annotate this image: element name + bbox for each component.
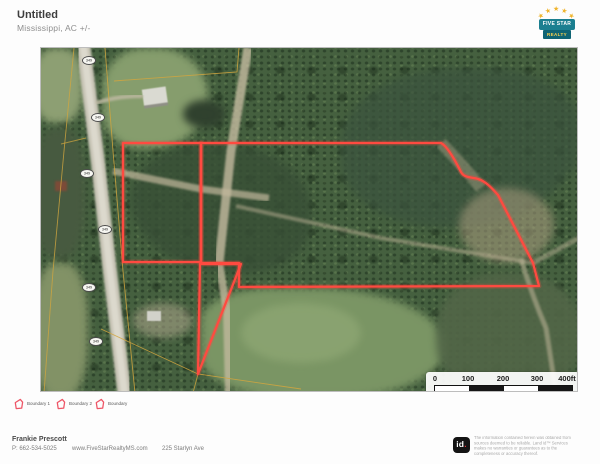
legend-item-boundary: Boundary [94,398,134,410]
logo-text-five-star: FIVE STAR [539,19,575,30]
legend-label: Boundary 2 [69,402,92,407]
road-badge-349: 349 [91,113,105,122]
star-icon: ★ [553,6,559,13]
map-report-page: Untitled Mississippi, AC +/- ★ ★ ★ ★ ★ F… [0,0,600,464]
boundary-polygon-icon [55,398,66,410]
legend-item-boundary-2: Boundary 2 [55,398,100,410]
road-badge-label: 349 [93,340,99,344]
dirt-path [533,238,578,263]
legend-item-boundary-1: Boundary 1 [13,398,58,410]
agent-phone: P: 662-534-5025 [12,446,57,452]
road-badge-349: 349 [82,283,96,292]
star-icon: ★ [544,7,552,15]
boundary-polygon-icon [13,398,24,410]
dirt-path [113,171,269,198]
road-badge-label: 349 [86,286,92,290]
driveway-path [96,96,143,103]
land-id-logo-text: id [456,439,464,449]
road-badge-label: 349 [86,59,92,63]
scale-label: 200 [497,374,510,383]
scale-label: 300 [531,374,544,383]
five-star-realty-logo: ★ ★ ★ ★ ★ FIVE STAR REALTY [536,5,578,44]
disclaimer: The information contained herein was obt… [474,436,574,458]
map-line-overlay [41,48,578,392]
boundary-2-glow [201,143,539,287]
scale-bar: 0 100 200 300 400ft [426,372,578,392]
scale-label: 400ft [558,374,576,383]
road-badge-349: 349 [80,169,94,178]
aerial-map: 349 349 349 349 349 349 0 100 200 300 40… [40,47,578,392]
scale-bar-segments [434,385,573,392]
road-badge-label: 349 [102,228,108,232]
page-title: Untitled [17,9,58,21]
dirt-path [236,206,533,263]
parcel-line [193,374,198,392]
dirt-path [219,263,229,392]
agent-name: Frankie Prescott [12,436,67,443]
parcel-line [114,48,239,81]
boundary-polygon-icon [94,398,105,410]
road-badge-349: 349 [82,56,96,65]
legend-label: Boundary 1 [27,402,50,407]
agency-website: www.FiveStarRealtyMS.com [72,446,148,452]
boundary-1-outline [123,143,201,262]
scale-label: 0 [433,374,437,383]
road-badge-349: 349 [98,225,112,234]
page-subtitle: Mississippi, AC +/- [17,23,90,33]
disclaimer-text: The information contained herein was obt… [474,436,574,457]
agency-address: 225 Starlyn Ave [162,446,204,452]
road-badge-349: 349 [89,337,103,346]
logo-text-realty: REALTY [543,30,571,39]
legend-label: Boundary [108,402,127,407]
boundary-2-outline [201,143,539,287]
road-badge-label: 349 [84,172,90,176]
boundary-1-glow [123,143,201,262]
land-id-logo-dot: . [464,439,467,449]
dirt-path [219,48,248,263]
road-badge-label: 349 [95,116,101,120]
star-icon: ★ [560,7,568,15]
scale-label: 100 [462,374,475,383]
parcel-line [44,48,74,392]
land-id-logo: id. [453,437,470,453]
